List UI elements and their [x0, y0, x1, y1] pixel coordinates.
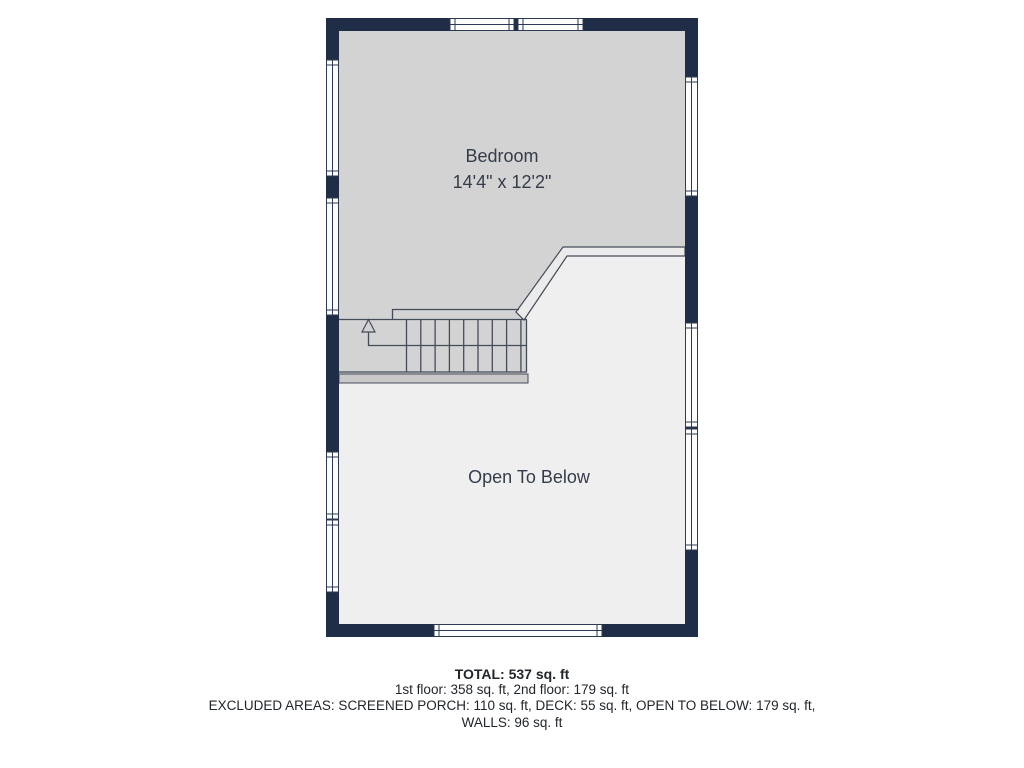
window: [327, 60, 339, 176]
window: [327, 198, 339, 315]
window: [686, 77, 698, 196]
room-dimensions: 14'4" x 12'2": [342, 169, 662, 195]
summary-excluded-areas: EXCLUDED AREAS: SCREENED PORCH: 110 sq. …: [0, 698, 1024, 714]
window: [327, 520, 339, 592]
open-to-below-label-block: Open To Below: [369, 466, 689, 488]
summary-total: TOTAL: 537 sq. ft: [0, 666, 1024, 682]
floor-plan-page: Bedroom 14'4" x 12'2" Open To Below TOTA…: [0, 0, 1024, 768]
window: [450, 19, 514, 31]
floor-plan-drawing: [0, 0, 1024, 768]
stair-landing-edge: [339, 374, 528, 383]
summary-walls: WALLS: 96 sq. ft: [0, 715, 1024, 731]
window: [434, 625, 602, 637]
window: [686, 429, 698, 550]
room-name: Open To Below: [369, 466, 689, 488]
area-summary: TOTAL: 537 sq. ft 1st floor: 358 sq. ft,…: [0, 666, 1024, 731]
bedroom-label-block: Bedroom 14'4" x 12'2": [342, 143, 662, 195]
window: [518, 19, 583, 31]
window: [686, 323, 698, 427]
window: [327, 452, 339, 519]
room-name: Bedroom: [342, 143, 662, 169]
summary-floors: 1st floor: 358 sq. ft, 2nd floor: 179 sq…: [0, 682, 1024, 698]
